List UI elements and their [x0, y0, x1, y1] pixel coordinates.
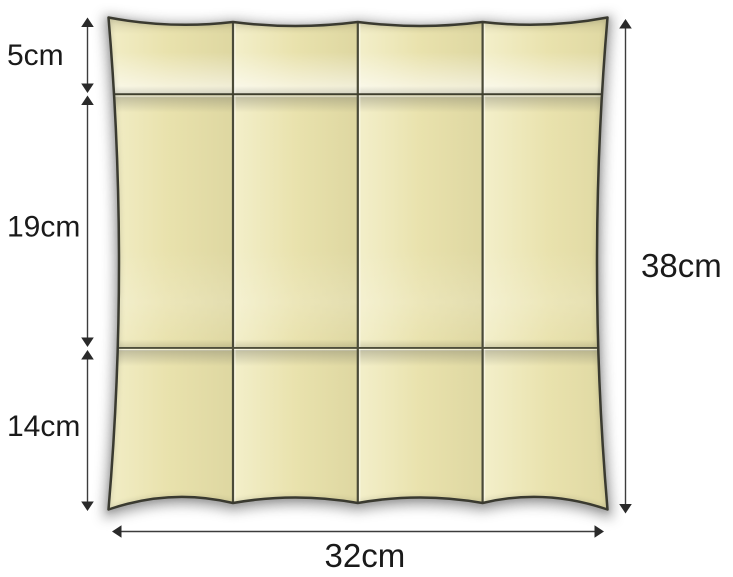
svg-text:14cm: 14cm: [7, 410, 80, 443]
svg-text:5cm: 5cm: [7, 39, 64, 72]
svg-text:19cm: 19cm: [7, 211, 80, 244]
svg-text:32cm: 32cm: [325, 537, 406, 574]
svg-text:38cm: 38cm: [641, 247, 722, 284]
